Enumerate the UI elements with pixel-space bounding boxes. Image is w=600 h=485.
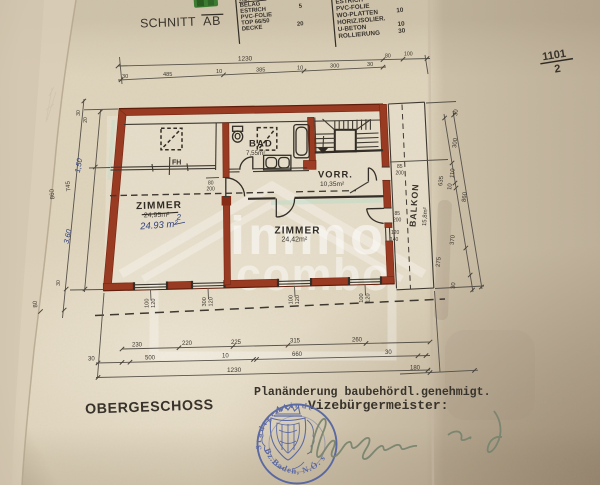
svg-text:635: 635 <box>438 175 445 186</box>
svg-text:30: 30 <box>122 74 128 80</box>
svg-text:300: 300 <box>202 297 208 306</box>
svg-text:230: 230 <box>132 342 143 348</box>
svg-text:30: 30 <box>56 280 62 286</box>
svg-text:100: 100 <box>288 295 294 304</box>
svg-text:225: 225 <box>231 340 242 346</box>
svg-text:ZIMMER: ZIMMER <box>275 226 321 237</box>
svg-text:FH: FH <box>172 160 181 167</box>
svg-text:30: 30 <box>76 110 82 116</box>
svg-text:30: 30 <box>88 357 95 363</box>
svg-text:120: 120 <box>151 299 157 308</box>
svg-text:100: 100 <box>404 52 413 58</box>
svg-text:120: 120 <box>209 297 215 306</box>
svg-text:180: 180 <box>410 366 421 372</box>
svg-text:10: 10 <box>216 69 222 75</box>
svg-text:10: 10 <box>297 65 303 71</box>
svg-text:860: 860 <box>462 191 469 202</box>
svg-text:20: 20 <box>83 117 89 123</box>
svg-text:10: 10 <box>222 354 229 360</box>
svg-text:10,35m²: 10,35m² <box>320 181 345 188</box>
svg-text:10: 10 <box>396 7 404 15</box>
svg-text:30: 30 <box>451 281 458 289</box>
svg-text:860: 860 <box>48 188 56 200</box>
svg-text:140: 140 <box>390 237 399 243</box>
svg-text:500: 500 <box>145 355 156 361</box>
svg-text:7,55m²: 7,55m² <box>246 150 265 157</box>
svg-text:275: 275 <box>436 256 443 267</box>
svg-text:385: 385 <box>256 67 265 73</box>
svg-text:80: 80 <box>385 54 391 60</box>
svg-text:315: 315 <box>290 339 301 345</box>
svg-text:200: 200 <box>393 218 402 224</box>
svg-text:100: 100 <box>359 293 365 302</box>
svg-text:120: 120 <box>366 293 372 302</box>
svg-text:485: 485 <box>163 72 172 78</box>
svg-text:30: 30 <box>453 108 460 116</box>
svg-text:AB: AB <box>203 14 222 29</box>
svg-text:120: 120 <box>391 230 400 236</box>
svg-text:BAD: BAD <box>249 139 273 150</box>
svg-text:30: 30 <box>398 27 406 35</box>
svg-text:VORR.: VORR. <box>318 170 353 180</box>
svg-text:80: 80 <box>33 300 40 308</box>
svg-text:745: 745 <box>64 180 72 192</box>
svg-text:200: 200 <box>396 171 405 177</box>
svg-text:85: 85 <box>395 211 401 217</box>
svg-text:10: 10 <box>447 182 454 190</box>
svg-text:30: 30 <box>385 350 392 356</box>
svg-text:24,42m²: 24,42m² <box>282 237 308 244</box>
svg-text:220: 220 <box>182 341 193 347</box>
svg-text:660: 660 <box>292 352 303 358</box>
svg-text:100: 100 <box>144 299 150 308</box>
svg-text:110: 110 <box>450 168 457 179</box>
svg-text:combo: combo <box>236 249 391 300</box>
svg-text:Vizebürgermeister:: Vizebürgermeister: <box>308 398 448 413</box>
svg-text:ZIMMER: ZIMMER <box>136 200 182 212</box>
svg-text:200: 200 <box>207 187 216 193</box>
svg-text:260: 260 <box>352 337 363 343</box>
svg-text:370: 370 <box>450 234 457 245</box>
svg-text:85: 85 <box>397 164 403 170</box>
svg-text:SCHNITT: SCHNITT <box>140 15 196 31</box>
svg-text:1230: 1230 <box>227 367 242 374</box>
svg-text:300: 300 <box>452 137 459 148</box>
svg-text:1230: 1230 <box>238 55 253 62</box>
svg-text:20: 20 <box>297 21 305 28</box>
svg-text:300: 300 <box>330 64 339 70</box>
svg-text:30: 30 <box>367 62 373 68</box>
svg-text:120: 120 <box>295 295 301 304</box>
